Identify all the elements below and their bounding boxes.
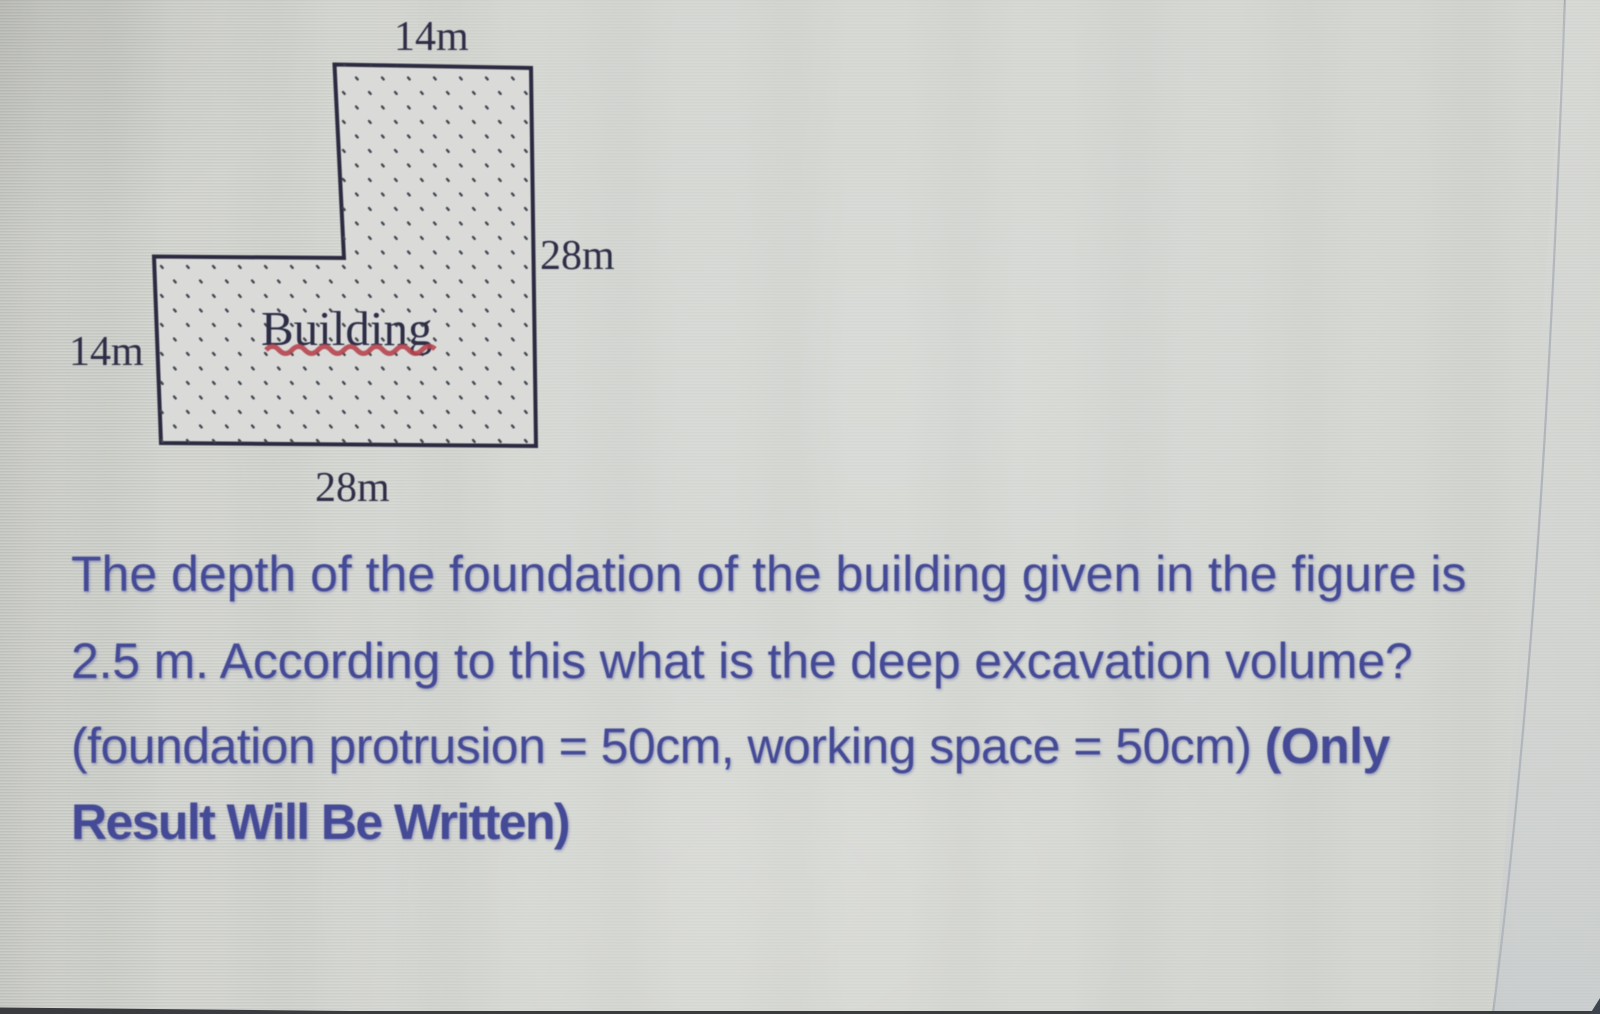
svg-text:14m: 14m — [69, 329, 144, 375]
svg-text:28m: 28m — [315, 465, 390, 511]
svg-text:28m: 28m — [540, 233, 615, 279]
svg-text:14m: 14m — [394, 14, 469, 60]
